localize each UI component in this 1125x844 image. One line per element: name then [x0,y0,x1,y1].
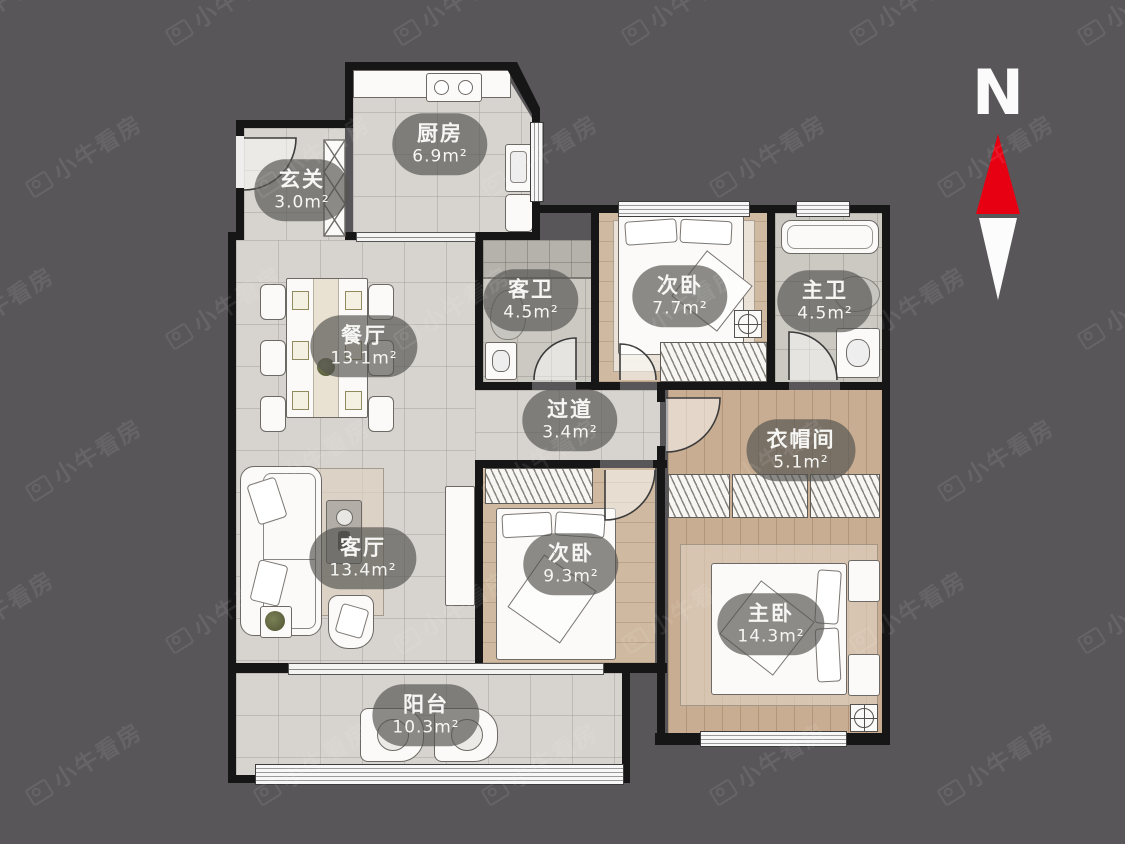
room-label-living: 客厅 13.4m² [309,527,416,589]
north-arrow-icon [975,132,1021,302]
watermark: 小牛看房 [19,409,148,507]
camera-icon [848,18,878,47]
room-name: 衣帽间 [767,426,836,452]
compass-n-label: N [952,62,1044,124]
wall-segment [657,460,665,745]
watermark: 小牛看房 [1071,257,1125,355]
kitchen-window [530,122,544,202]
kitchen-sink-icon [505,144,533,192]
wall-segment [475,460,483,663]
floor-plan: 玄关 3.0m² 厨房 6.9m² 客卫 4.5m² 次卧 7.7m² 主卫 4… [228,62,894,785]
ac-unit-icon [850,704,878,732]
watermark: 小牛看房 [931,409,1060,507]
balcony-sliding-door [288,663,604,675]
camera-icon [164,626,194,655]
guest-sink-icon [485,342,517,380]
nightstand-icon [848,560,880,602]
wall-segment [228,232,236,783]
room-label-master-bedroom: 主卧 14.3m² [717,593,824,655]
wall-segment [475,232,483,390]
camera-icon [392,18,422,47]
room-name: 厨房 [412,120,467,146]
north-compass: N [952,62,1044,302]
dining-chair-icon [368,396,394,432]
watermark: 小牛看房 [19,105,148,203]
watermark: 小牛看房 [387,0,516,51]
room-name: 次卧 [543,540,598,566]
ac-unit-icon [734,310,762,338]
room-area: 14.3m² [737,627,804,648]
dining-chair-icon [260,396,286,432]
wardrobe-2b-icon [485,468,593,504]
camera-icon [164,322,194,351]
wall-segment [475,382,532,390]
camera-icon [936,474,966,503]
room-name: 玄关 [274,166,329,192]
balcony-window [255,764,624,785]
room-name: 阳台 [392,691,459,717]
wall-segment [591,205,599,390]
room-area: 13.1m² [330,349,397,370]
room-name: 次卧 [652,272,707,298]
room-label-dining: 餐厅 13.1m² [310,315,417,377]
room-name: 客卫 [503,276,558,302]
closet-wardrobe-icon [668,474,730,518]
room-area: 10.3m² [392,718,459,739]
watermark: 小牛看房 [615,0,744,51]
tv-cabinet-icon [445,486,475,606]
room-name: 客厅 [329,534,396,560]
room-label-guest-bath: 客卫 4.5m² [483,269,578,331]
watermark: 小牛看房 [843,0,972,51]
dining-chair-icon [260,284,286,320]
wardrobe-2a-icon [660,342,767,382]
room-area: 5.1m² [767,453,836,474]
room-label-entry: 玄关 3.0m² [254,159,349,221]
wall-segment [657,446,665,460]
camera-icon [164,18,194,47]
fridge-icon [505,194,533,232]
entry-door-opening [236,136,244,188]
room-label-bedroom-2a: 次卧 7.7m² [632,265,727,327]
bathtub-icon [781,220,879,254]
room-label-hallway: 过道 3.4m² [522,389,617,451]
watermark: 小牛看房 [1071,561,1125,659]
room-name: 餐厅 [330,322,397,348]
camera-icon [24,170,54,199]
watermark: 小牛看房 [0,0,60,51]
wall-segment [767,205,775,390]
room-name: 主卧 [737,600,804,626]
room-area: 4.5m² [797,304,852,325]
room-area: 3.0m² [274,193,329,214]
watermark: 小牛看房 [1071,0,1125,51]
room-label-master-bath: 主卫 4.5m² [777,270,872,332]
wall-segment [475,460,600,468]
wall-segment [236,188,244,240]
room-area: 3.4m² [542,423,597,444]
room-area: 4.5m² [503,303,558,324]
room-name: 过道 [542,396,597,422]
dining-chair-icon [260,340,286,376]
kitchen-sliding-door [356,232,476,242]
camera-icon [24,778,54,807]
watermark: 小牛看房 [0,257,60,355]
wall-segment [345,62,515,70]
wall-segment [882,205,890,745]
camera-icon [24,474,54,503]
pillow-icon [679,219,732,246]
pillow-icon [624,218,678,246]
camera-icon [1076,18,1106,47]
room-area: 6.9m² [412,147,467,168]
north-arrow-white [979,218,1017,300]
camera-icon [1076,626,1106,655]
room-name: 主卫 [797,277,852,303]
north-arrow-red [976,134,1020,214]
stove-icon [426,73,482,102]
master-window [700,731,847,747]
camera-icon [936,778,966,807]
room-label-balcony: 阳台 10.3m² [372,684,479,746]
room-label-bedroom-2b: 次卧 9.3m² [523,533,618,595]
plant-icon [265,611,285,631]
wall-segment [236,120,353,128]
watermark: 小牛看房 [0,561,60,659]
wall-segment [345,62,353,128]
window [618,201,750,217]
nightstand-icon [848,654,880,696]
window [796,201,850,217]
room-area: 13.4m² [329,561,396,582]
watermark: 小牛看房 [931,713,1060,811]
camera-icon [620,18,650,47]
wall-segment [657,390,665,402]
wall-segment [228,663,288,673]
room-label-closet: 衣帽间 5.1m² [747,419,856,481]
room-area: 7.7m² [652,299,707,320]
wall-segment [236,120,244,136]
floor-plan-page: 玄关 3.0m² 厨房 6.9m² 客卫 4.5m² 次卧 7.7m² 主卫 4… [0,0,1125,844]
master-sink-icon [836,328,880,378]
watermark: 小牛看房 [159,0,288,51]
room-area: 9.3m² [543,567,598,588]
watermark: 小牛看房 [19,713,148,811]
room-label-kitchen: 厨房 6.9m² [392,113,487,175]
camera-icon [1076,322,1106,351]
